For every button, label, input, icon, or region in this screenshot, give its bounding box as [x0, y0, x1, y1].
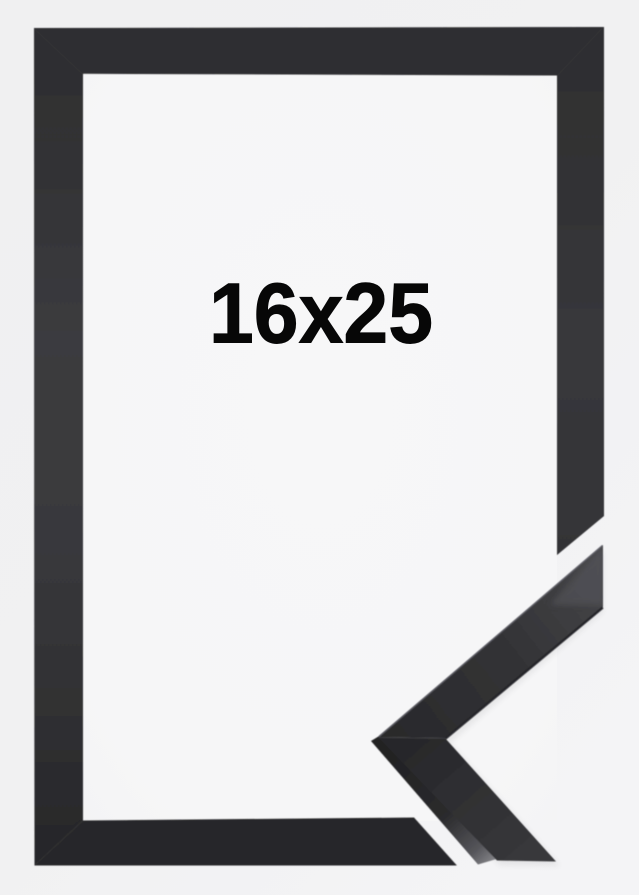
svg-text:16x25: 16x25 — [209, 267, 433, 362]
